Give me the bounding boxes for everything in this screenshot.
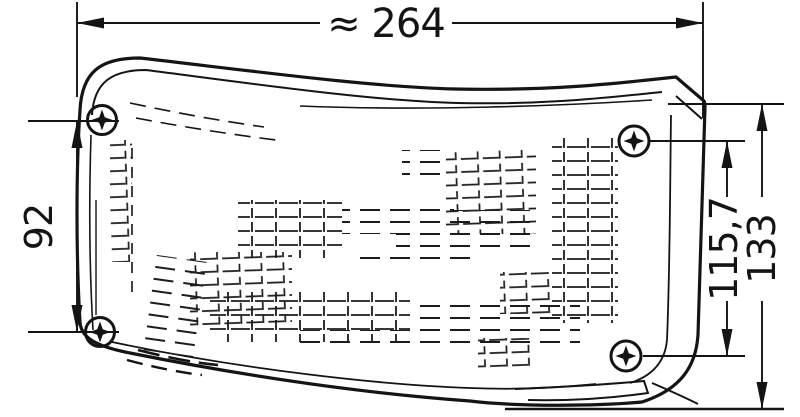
lens-hatch-region	[138, 254, 213, 358]
screw-cross	[616, 346, 637, 367]
dimension-right-mount-spacing: 115,7	[643, 141, 746, 356]
lens-hatch-region	[238, 200, 342, 258]
lens-texture	[96, 103, 618, 375]
dimension-overall-width: ≈ 264	[77, 1, 703, 118]
dimension-label: 133	[740, 214, 784, 284]
lens-hatch-region	[402, 150, 446, 180]
lens-hatch-region	[290, 330, 580, 345]
dimension-label: 92	[17, 204, 61, 250]
top-right-fold-seam	[676, 96, 702, 119]
lens-hatch-region	[500, 272, 552, 314]
lamp-technical-drawing: ≈ 264 92 115,7 133	[0, 0, 800, 417]
arrowhead	[77, 18, 104, 29]
lens-hatch-region	[478, 338, 532, 370]
phillips-screw-icon	[611, 341, 641, 371]
dimension-label: ≈ 264	[327, 1, 445, 47]
phillips-screw-icon	[619, 126, 649, 156]
drawing-canvas: ≈ 264 92 115,7 133	[0, 0, 800, 417]
lens-bottom-dash-curve	[127, 360, 202, 375]
lens-slant-dash-line	[130, 103, 264, 127]
arrowhead	[676, 18, 703, 29]
arrowhead	[757, 382, 768, 409]
phillips-screw-icon	[88, 106, 117, 135]
bottom-endcap-flap	[515, 381, 648, 400]
arrowhead	[757, 104, 768, 131]
arrowhead	[722, 329, 733, 356]
lens-slant-dash-line	[136, 118, 284, 141]
screw-cross	[92, 110, 113, 131]
screw-cross	[624, 131, 645, 152]
dimension-left-mount-spacing: 92	[17, 121, 119, 332]
arrowhead	[722, 141, 733, 168]
lens-hatch-region	[552, 138, 618, 323]
lens-left-edge	[90, 135, 93, 330]
lens-hatch-region	[350, 250, 470, 262]
lens-hatch-ladder	[110, 140, 132, 262]
arrowhead	[72, 121, 83, 148]
lens-hatch-region	[396, 210, 536, 250]
